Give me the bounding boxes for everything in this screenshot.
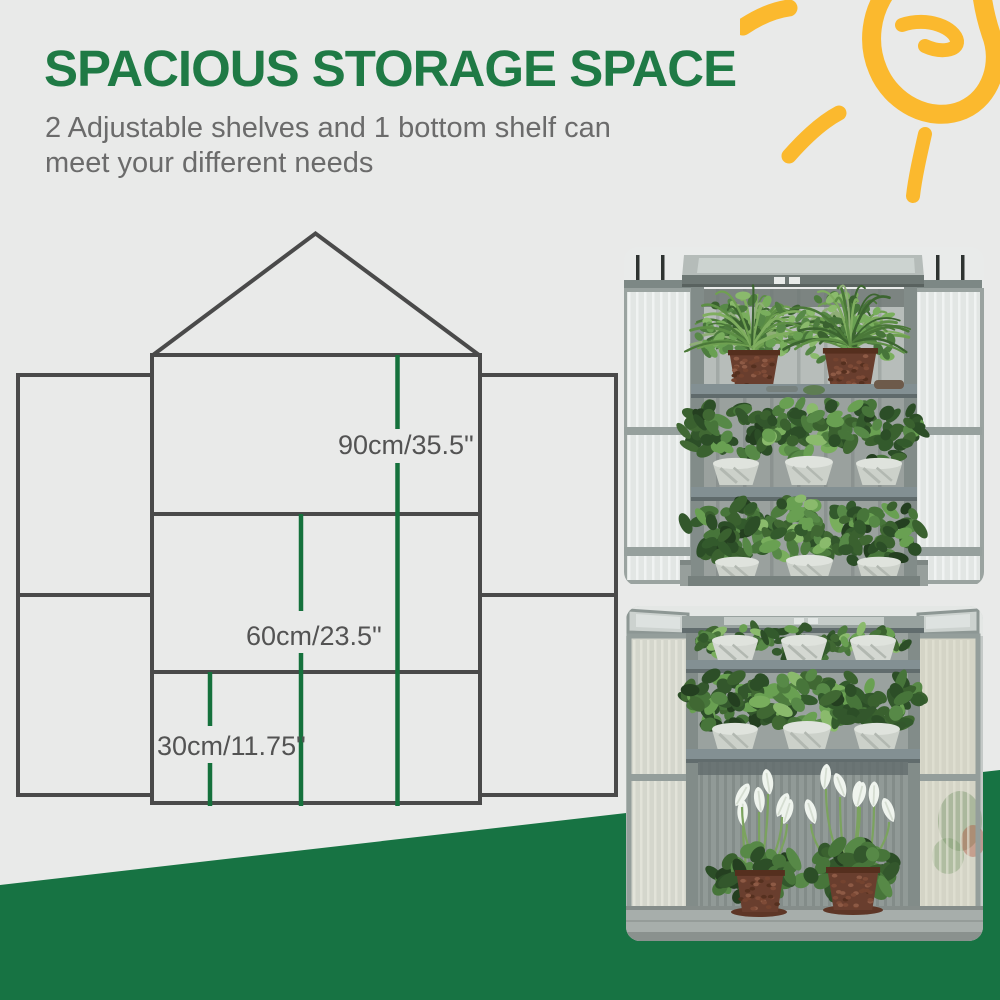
svg-text:60cm/23.5": 60cm/23.5": [246, 621, 382, 651]
svg-text:90cm/35.5": 90cm/35.5": [338, 430, 474, 460]
svg-text:30cm/11.75": 30cm/11.75": [157, 731, 306, 761]
